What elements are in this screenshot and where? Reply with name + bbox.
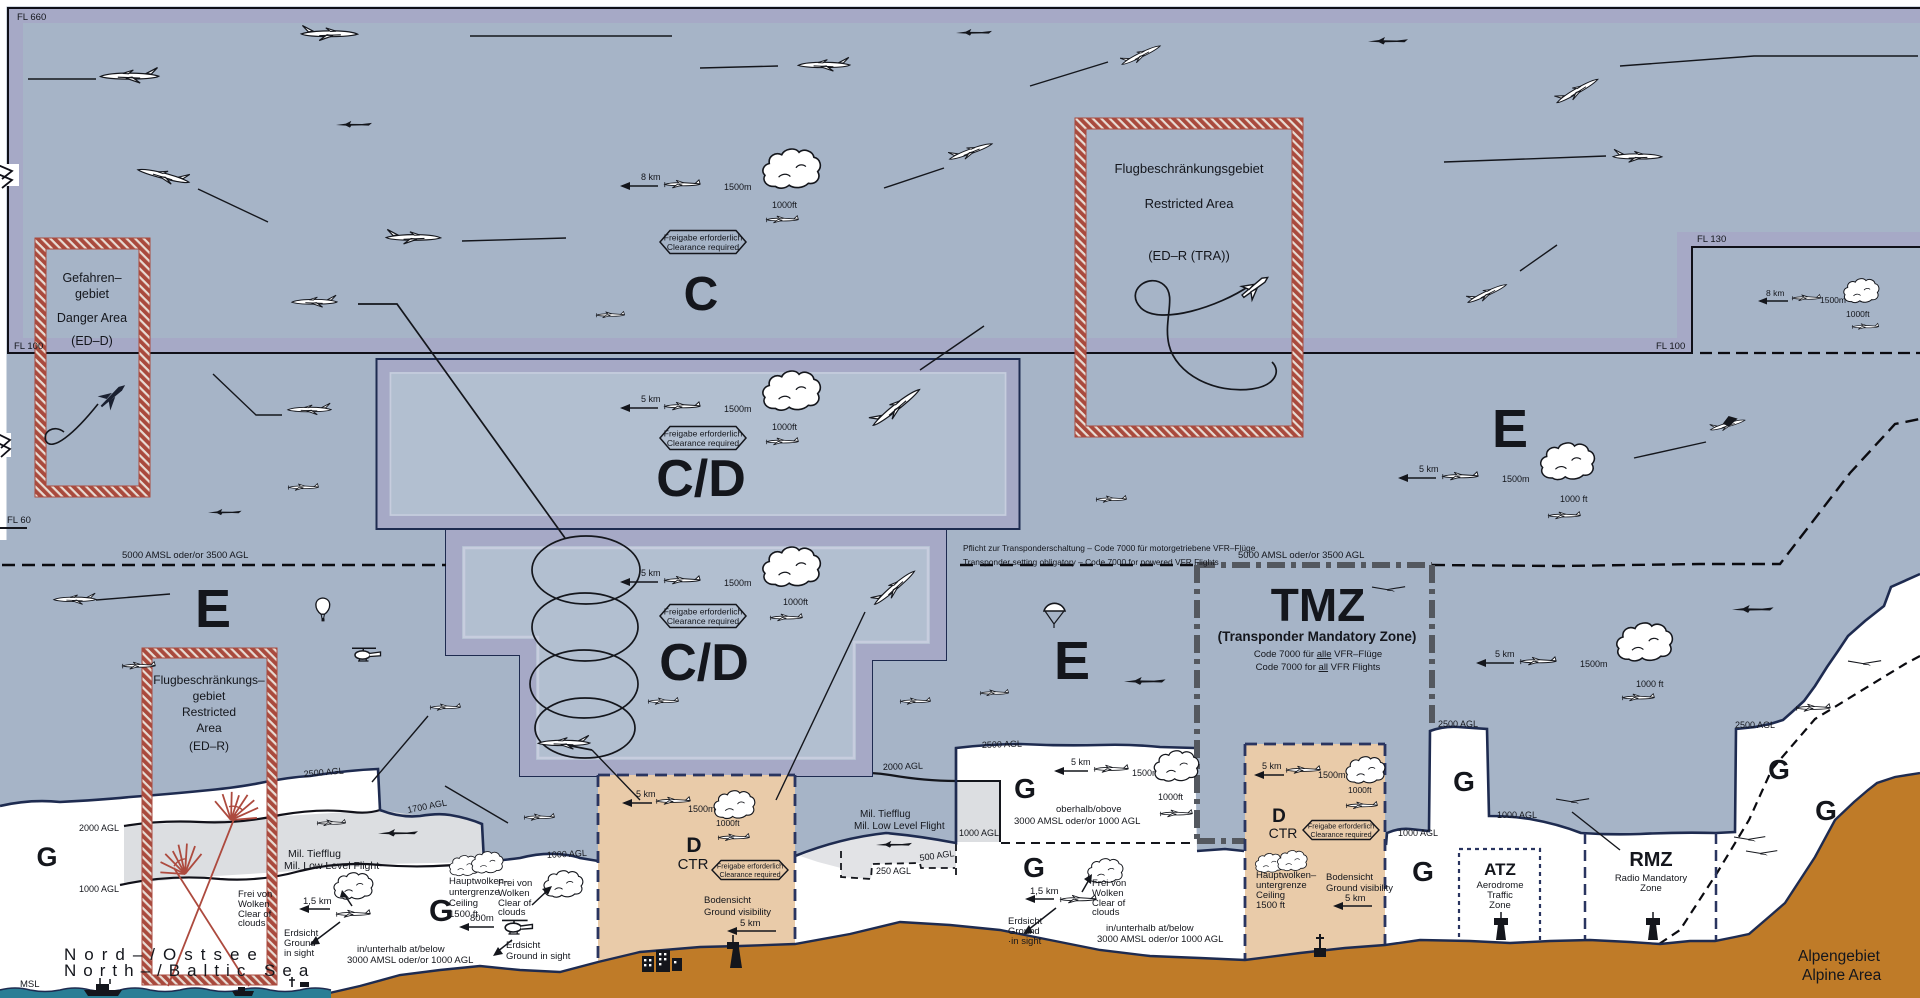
svg-text:3000 AMSL oder/or 1000 AGL: 3000 AMSL oder/or 1000 AGL xyxy=(1014,816,1140,827)
svg-text:in sight: in sight xyxy=(284,948,314,959)
svg-text:Restricted: Restricted xyxy=(182,705,236,719)
svg-text:clouds: clouds xyxy=(498,907,526,918)
svg-text:1500m: 1500m xyxy=(1318,770,1346,780)
svg-text:FL 660: FL 660 xyxy=(17,12,46,23)
svg-text:Gefahren–: Gefahren– xyxy=(62,271,121,285)
svg-text:clouds: clouds xyxy=(238,918,266,929)
svg-text:E: E xyxy=(1054,631,1090,691)
svg-text:Flugbeschränkungs–: Flugbeschränkungs– xyxy=(153,673,265,687)
svg-text:Ground in sight: Ground in sight xyxy=(506,951,571,962)
svg-text:Ceiling: Ceiling xyxy=(449,898,478,909)
svg-text:Code 7000 für alle VFR–Flüg: Code 7000 für alle VFR–Flüge xyxy=(1254,649,1382,660)
svg-text:1000ft: 1000ft xyxy=(772,200,798,210)
svg-text:Mil. Low Level Flight: Mil. Low Level Flight xyxy=(854,821,945,832)
svg-text:250 AGL: 250 AGL xyxy=(876,866,911,876)
svg-text:FL 130: FL 130 xyxy=(1697,234,1726,245)
svg-text:5000 AMSL oder/or 3500 AGL: 5000 AMSL oder/or 3500 AGL xyxy=(122,550,248,561)
svg-text:Danger Area: Danger Area xyxy=(57,311,127,325)
svg-text:2000 AGL: 2000 AGL xyxy=(79,823,119,833)
svg-text:gebiet: gebiet xyxy=(75,287,110,301)
svg-text:5 km: 5 km xyxy=(1419,464,1439,474)
svg-text:Clearance required: Clearance required xyxy=(667,616,740,626)
svg-text:1500m: 1500m xyxy=(1820,295,1846,305)
svg-text:C: C xyxy=(684,268,719,321)
svg-text:1000ft: 1000ft xyxy=(1846,309,1870,319)
svg-text:CTR: CTR xyxy=(1269,825,1298,841)
svg-text:8 km: 8 km xyxy=(1766,288,1784,298)
svg-text:1000 ft: 1000 ft xyxy=(1636,679,1664,689)
svg-text:1,5 km: 1,5 km xyxy=(303,896,332,907)
svg-text:1000 AGL: 1000 AGL xyxy=(1497,810,1537,820)
svg-text:1000ft: 1000ft xyxy=(772,422,798,432)
svg-text:·in sight: ·in sight xyxy=(1008,936,1042,947)
svg-text:3000 AMSL oder/or 1000 AGL: 3000 AMSL oder/or 1000 AGL xyxy=(347,955,473,966)
svg-text:5 km: 5 km xyxy=(1071,757,1091,767)
svg-text:2500 AGL: 2500 AGL xyxy=(982,739,1022,750)
svg-text:2000 AGL: 2000 AGL xyxy=(883,761,923,772)
svg-text:in/unterhalb at/below: in/unterhalb at/below xyxy=(1106,923,1194,934)
svg-text:ATZ: ATZ xyxy=(1484,860,1516,879)
svg-text:Restricted Area: Restricted Area xyxy=(1145,196,1235,211)
svg-text:C/D: C/D xyxy=(659,634,749,692)
svg-text:Area: Area xyxy=(196,721,222,735)
svg-text:(ED–R (TRA)): (ED–R (TRA)) xyxy=(1148,248,1230,263)
svg-text:1500m: 1500m xyxy=(724,182,752,192)
svg-text:8 km: 8 km xyxy=(641,172,661,182)
svg-text:Mil. Tiefflug: Mil. Tiefflug xyxy=(288,848,341,860)
svg-text:2500 AGL: 2500 AGL xyxy=(1735,720,1775,730)
svg-text:1000 AGL: 1000 AGL xyxy=(959,828,999,838)
svg-text:Freigabe erforderlich: Freigabe erforderlich xyxy=(664,607,743,617)
svg-text:FL 100: FL 100 xyxy=(1656,341,1685,352)
svg-text:Freigabe erforderlich: Freigabe erforderlich xyxy=(664,429,743,439)
svg-text:FL 60: FL 60 xyxy=(7,515,31,526)
svg-text:CTR: CTR xyxy=(678,856,709,873)
svg-text:gebiet: gebiet xyxy=(193,689,226,703)
svg-text:Alpine Area: Alpine Area xyxy=(1802,967,1882,984)
svg-text:5 km: 5 km xyxy=(740,918,761,929)
svg-text:1500 ft: 1500 ft xyxy=(1256,900,1285,911)
svg-text:TMZ: TMZ xyxy=(1271,579,1366,631)
svg-text:G: G xyxy=(1815,795,1837,826)
svg-text:oberhalb/obove: oberhalb/obove xyxy=(1056,804,1122,815)
svg-text:1000 AGL: 1000 AGL xyxy=(1398,828,1438,838)
svg-text:Erdsicht: Erdsicht xyxy=(506,940,541,951)
svg-text:(ED–D): (ED–D) xyxy=(71,334,113,348)
svg-text:G: G xyxy=(1453,766,1475,797)
svg-text:G: G xyxy=(1014,773,1036,804)
svg-text:Bodensicht: Bodensicht xyxy=(1326,872,1373,883)
svg-text:1000ft: 1000ft xyxy=(783,597,809,607)
svg-text:1000ft: 1000ft xyxy=(1348,785,1372,795)
svg-text:(ED–R): (ED–R) xyxy=(189,739,229,753)
svg-text:5000 AMSL oder/or 3500 AGL: 5000 AMSL oder/or 3500 AGL xyxy=(1238,550,1364,561)
svg-text:Hauptwolken–: Hauptwolken– xyxy=(449,876,510,887)
svg-text:5 km: 5 km xyxy=(641,394,661,404)
svg-text:(Transponder Mandatory Zone): (Transponder Mandatory Zone) xyxy=(1218,629,1417,644)
svg-text:G: G xyxy=(36,842,57,872)
svg-text:Zone: Zone xyxy=(1489,900,1511,911)
svg-text:3000 AMSL oder/or 1000 AGL: 3000 AMSL oder/or 1000 AGL xyxy=(1097,934,1223,945)
svg-text:Flugbeschränkungsgebiet: Flugbeschränkungsgebiet xyxy=(1115,161,1264,176)
svg-text:G: G xyxy=(1768,754,1790,785)
svg-text:D: D xyxy=(1272,806,1286,827)
svg-text:Mil. Low Level Flight: Mil. Low Level Flight xyxy=(284,860,379,872)
svg-text:G: G xyxy=(1412,856,1434,887)
svg-text:1500m: 1500m xyxy=(1502,474,1530,484)
svg-text:1500m: 1500m xyxy=(724,578,752,588)
svg-text:Mil. Tiefflug: Mil. Tiefflug xyxy=(860,809,910,820)
svg-text:5 km: 5 km xyxy=(1495,649,1515,659)
svg-text:untergrenze: untergrenze xyxy=(449,887,500,898)
svg-text:E: E xyxy=(1492,399,1528,459)
svg-text:1500m: 1500m xyxy=(724,404,752,414)
svg-text:Clearance required: Clearance required xyxy=(667,242,740,252)
svg-text:1500m: 1500m xyxy=(1580,659,1608,669)
svg-text:G: G xyxy=(1023,852,1045,883)
svg-text:1500 ft: 1500 ft xyxy=(449,909,478,920)
svg-text:Zone: Zone xyxy=(1640,883,1662,894)
svg-text:1000ft: 1000ft xyxy=(716,818,740,828)
svg-text:D: D xyxy=(686,834,701,857)
svg-text:Alpengebiet: Alpengebiet xyxy=(1798,948,1881,965)
svg-text:Code 7000 for all VFR Fligh: Code 7000 for all VFR Flights xyxy=(1256,662,1381,673)
svg-text:1000 AGL: 1000 AGL xyxy=(547,848,588,860)
svg-text:in/unterhalb at/below: in/unterhalb at/below xyxy=(357,944,445,955)
svg-text:FL 100: FL 100 xyxy=(14,341,43,352)
svg-text:5 km: 5 km xyxy=(636,789,656,799)
svg-text:C/D: C/D xyxy=(656,450,746,508)
svg-text:Ground visibility: Ground visibility xyxy=(704,907,771,918)
svg-text:Transponder setting obligato: Transponder setting obligatory – Code 70… xyxy=(963,557,1219,567)
svg-text:5 km: 5 km xyxy=(641,568,661,578)
svg-text:clouds: clouds xyxy=(1092,907,1120,918)
svg-text:RMZ: RMZ xyxy=(1629,849,1672,871)
svg-text:2500 AGL: 2500 AGL xyxy=(1438,719,1478,729)
svg-text:5 km: 5 km xyxy=(1345,893,1366,904)
svg-text:Freigabe erforderlich: Freigabe erforderlich xyxy=(664,233,743,243)
svg-text:Bodensicht: Bodensicht xyxy=(704,895,751,906)
svg-text:1000ft: 1000ft xyxy=(1158,792,1184,802)
svg-text:Clearance required: Clearance required xyxy=(667,438,740,448)
svg-text:5 km: 5 km xyxy=(1262,761,1282,771)
svg-text:MSL: MSL xyxy=(20,979,40,990)
svg-text:Pflicht zur Transponderschal: Pflicht zur Transponderschaltung – Code … xyxy=(963,543,1256,553)
svg-text:Clearance required: Clearance required xyxy=(1310,830,1371,839)
svg-text:Clearance required: Clearance required xyxy=(719,870,780,879)
svg-text:1000 ft: 1000 ft xyxy=(1560,494,1588,504)
svg-text:North–/Baltic Sea: North–/Baltic Sea xyxy=(64,961,315,980)
svg-text:1000 AGL: 1000 AGL xyxy=(79,884,119,894)
svg-text:E: E xyxy=(195,579,231,639)
svg-text:1500m: 1500m xyxy=(688,804,716,814)
